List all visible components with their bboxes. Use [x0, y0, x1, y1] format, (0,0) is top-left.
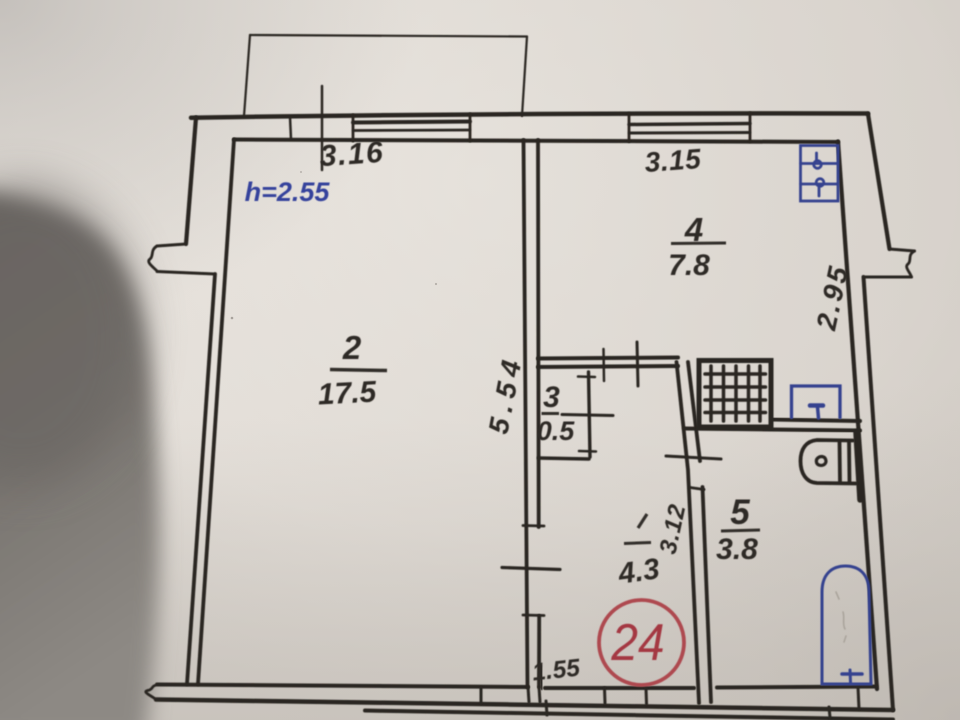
svg-text:3: 3	[543, 381, 560, 414]
svg-text:2: 2	[342, 329, 362, 366]
svg-text:4.3: 4.3	[615, 552, 662, 591]
svg-text:1.55: 1.55	[531, 655, 582, 687]
svg-text:17.5: 17.5	[317, 375, 378, 411]
svg-text:h=2.55: h=2.55	[245, 177, 331, 207]
svg-text:24: 24	[610, 613, 664, 671]
svg-text:3.8: 3.8	[716, 533, 758, 566]
svg-text:5: 5	[730, 493, 750, 532]
svg-text:7.8: 7.8	[668, 249, 710, 282]
svg-text:3.16: 3.16	[319, 136, 386, 173]
svg-text:0.5: 0.5	[537, 416, 576, 446]
svg-text:3.15: 3.15	[644, 143, 703, 178]
